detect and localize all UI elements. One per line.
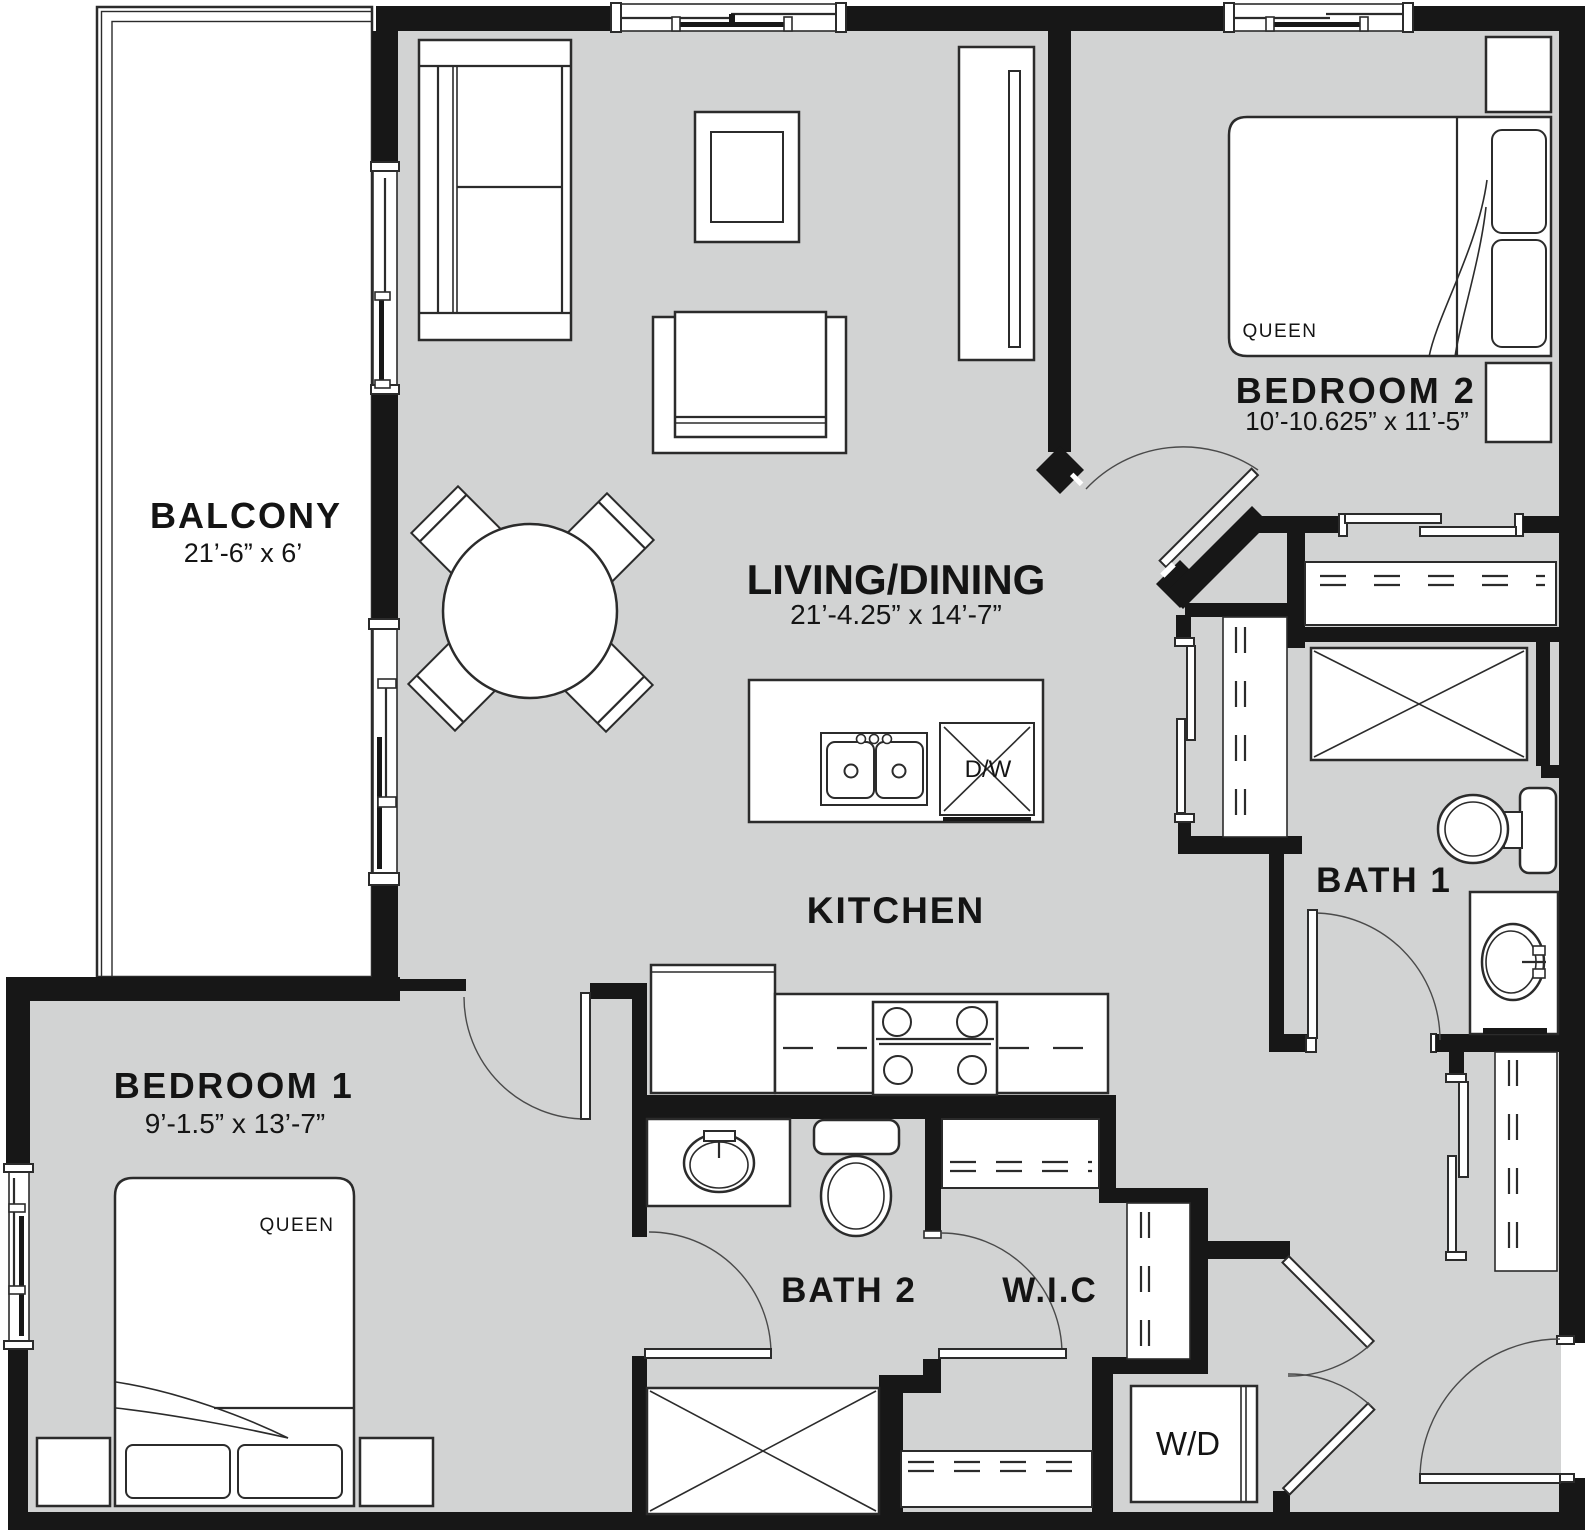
svg-text:9’-1.5” x 13’-7”: 9’-1.5” x 13’-7” <box>145 1108 326 1139</box>
svg-text:21’-6” x 6’: 21’-6” x 6’ <box>184 538 303 568</box>
svg-text:W.I.C: W.I.C <box>1002 1271 1098 1310</box>
svg-text:10’-10.625” x 11’-5”: 10’-10.625” x 11’-5” <box>1245 406 1469 436</box>
svg-text:QUEEN: QUEEN <box>1242 321 1317 342</box>
svg-text:BATH 1: BATH 1 <box>1316 861 1452 900</box>
svg-text:BEDROOM 2: BEDROOM 2 <box>1236 370 1477 411</box>
svg-text:BEDROOM 1: BEDROOM 1 <box>114 1065 355 1106</box>
svg-text:QUEEN: QUEEN <box>259 1215 334 1236</box>
svg-text:D/W: D/W <box>965 756 1012 783</box>
svg-text:KITCHEN: KITCHEN <box>807 890 985 931</box>
svg-text:LIVING/DINING: LIVING/DINING <box>747 556 1046 603</box>
svg-text:BALCONY: BALCONY <box>150 495 342 536</box>
svg-text:W/D: W/D <box>1156 1425 1220 1462</box>
svg-text:BATH 2: BATH 2 <box>781 1271 917 1310</box>
svg-text:21’-4.25” x 14’-7”: 21’-4.25” x 14’-7” <box>790 599 1002 630</box>
